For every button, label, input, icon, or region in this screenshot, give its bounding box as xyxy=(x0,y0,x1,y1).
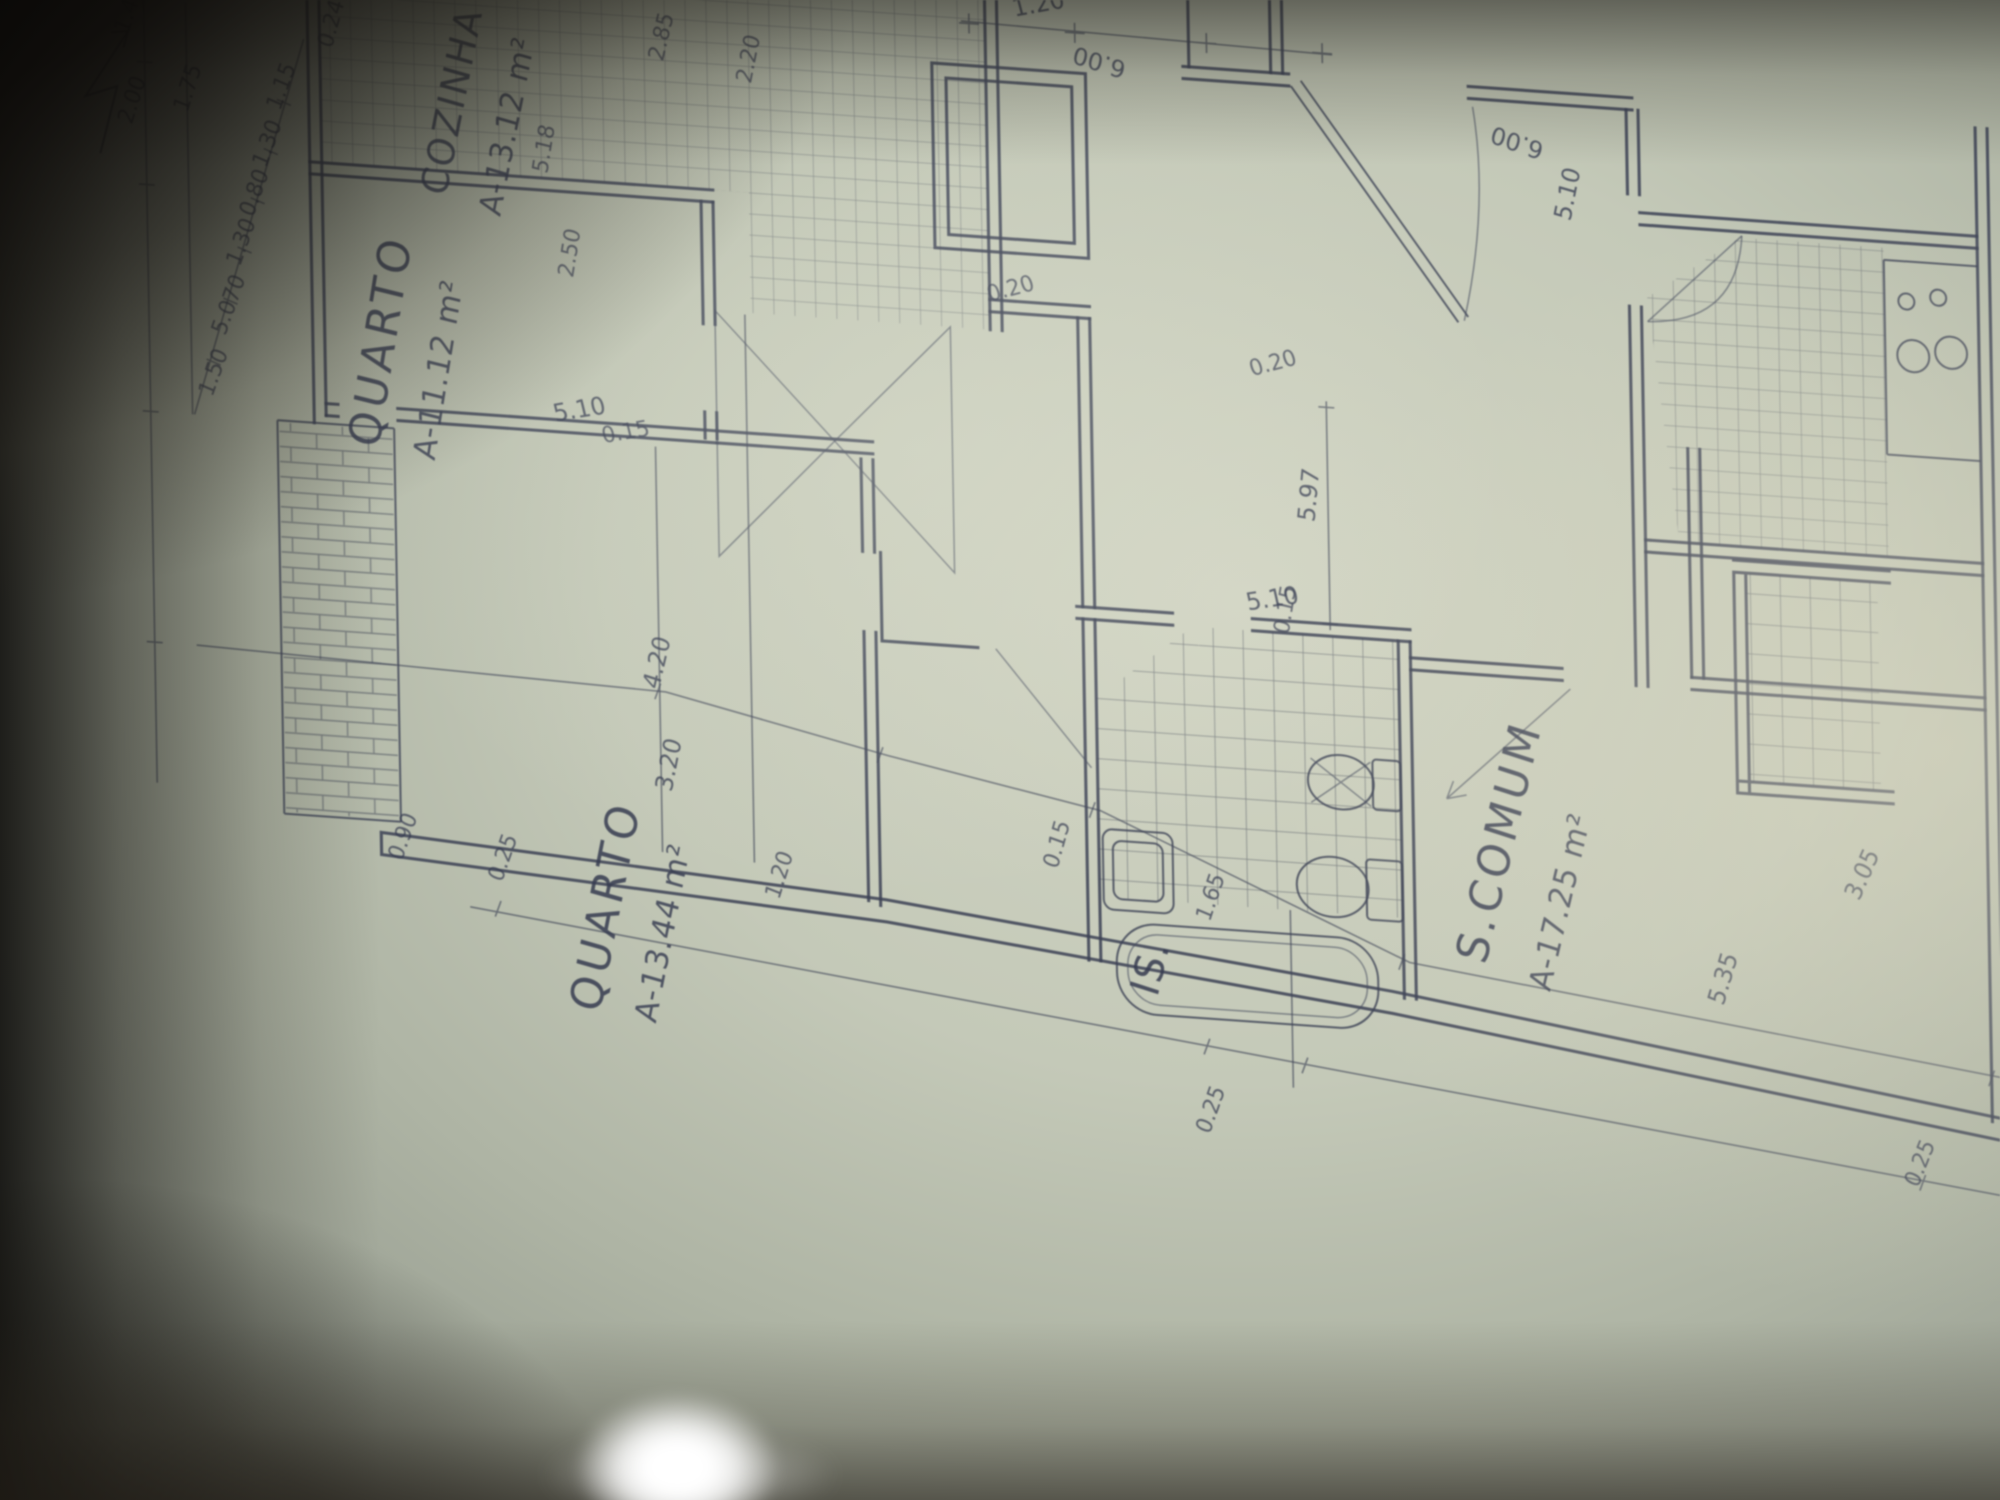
dim-label: 5.070 xyxy=(207,271,251,339)
dim-label: 2.50 xyxy=(554,226,586,280)
dim-label: 4.20 xyxy=(637,633,676,693)
dim-label: 1.30 xyxy=(222,214,261,269)
entry-door-leaf xyxy=(1291,80,1469,323)
dim-label: 6.00 xyxy=(1488,120,1547,165)
room-area-scomum: A-17.25 m² xyxy=(1523,809,1599,995)
dim-label: 1.50 xyxy=(194,345,233,400)
dim-label: 3.05 xyxy=(1839,844,1885,905)
dim-label: 1.75 xyxy=(169,60,207,115)
dim-label: 0.15 xyxy=(599,416,652,449)
stove-burners-icon xyxy=(1884,260,1981,461)
balcony-brick-floor xyxy=(279,422,399,819)
entry-door-swing xyxy=(1461,106,1482,322)
dim-label: 0.80 xyxy=(235,165,274,220)
dim-label: 1.15 xyxy=(262,59,301,114)
dim-label: 1.30 xyxy=(248,116,287,171)
dim-label: 5.97 xyxy=(1293,466,1325,524)
dim-label: 0.20 xyxy=(1246,346,1300,382)
dim-label: 0.25 xyxy=(484,830,523,885)
blueprint-photo: COZINHA A-13.12 m² QUARTO A-11.12 m² QUA… xyxy=(0,0,2000,1500)
room-label-quarto1: QUARTO xyxy=(339,229,423,452)
dim-label: 1.20 xyxy=(761,848,799,903)
dim-label: 0.15 xyxy=(1039,817,1076,872)
dim-label: 6.00 xyxy=(1070,40,1128,83)
kitchen-right-tiles xyxy=(1646,231,1889,557)
floor-plan: COZINHA A-13.12 m² QUARTO A-11.12 m² QUA… xyxy=(0,0,2000,1500)
dim-label: 5.35 xyxy=(1702,948,1743,1008)
dim-label: 0.25 xyxy=(1192,1082,1231,1137)
bath-door-leaf xyxy=(996,649,1092,768)
bathroom-tiles xyxy=(1095,620,1403,918)
room-area-quarto1: A-11.12 m² xyxy=(407,276,471,463)
dim-label: 1.20 xyxy=(1009,0,1068,23)
hall-door-swing-right xyxy=(833,319,955,573)
dim-label: 5.10 xyxy=(1549,164,1587,223)
dim-label: 3.20 xyxy=(650,735,688,794)
